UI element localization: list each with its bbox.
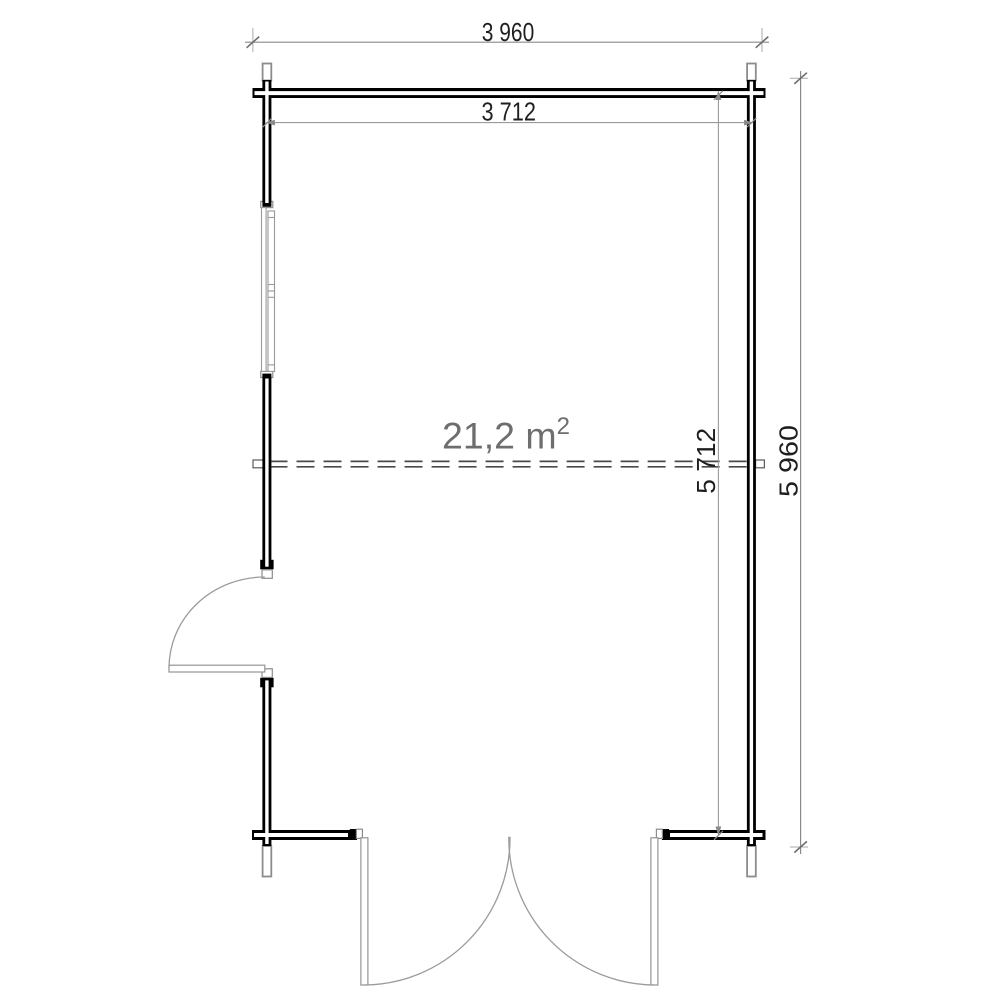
svg-text:21,2 m2: 21,2 m2 [442,413,570,456]
svg-text:5 712: 5 712 [691,428,721,494]
svg-text:5 960: 5 960 [774,425,804,497]
svg-text:3 712: 3 712 [481,96,536,126]
svg-text:3 960: 3 960 [482,17,535,47]
